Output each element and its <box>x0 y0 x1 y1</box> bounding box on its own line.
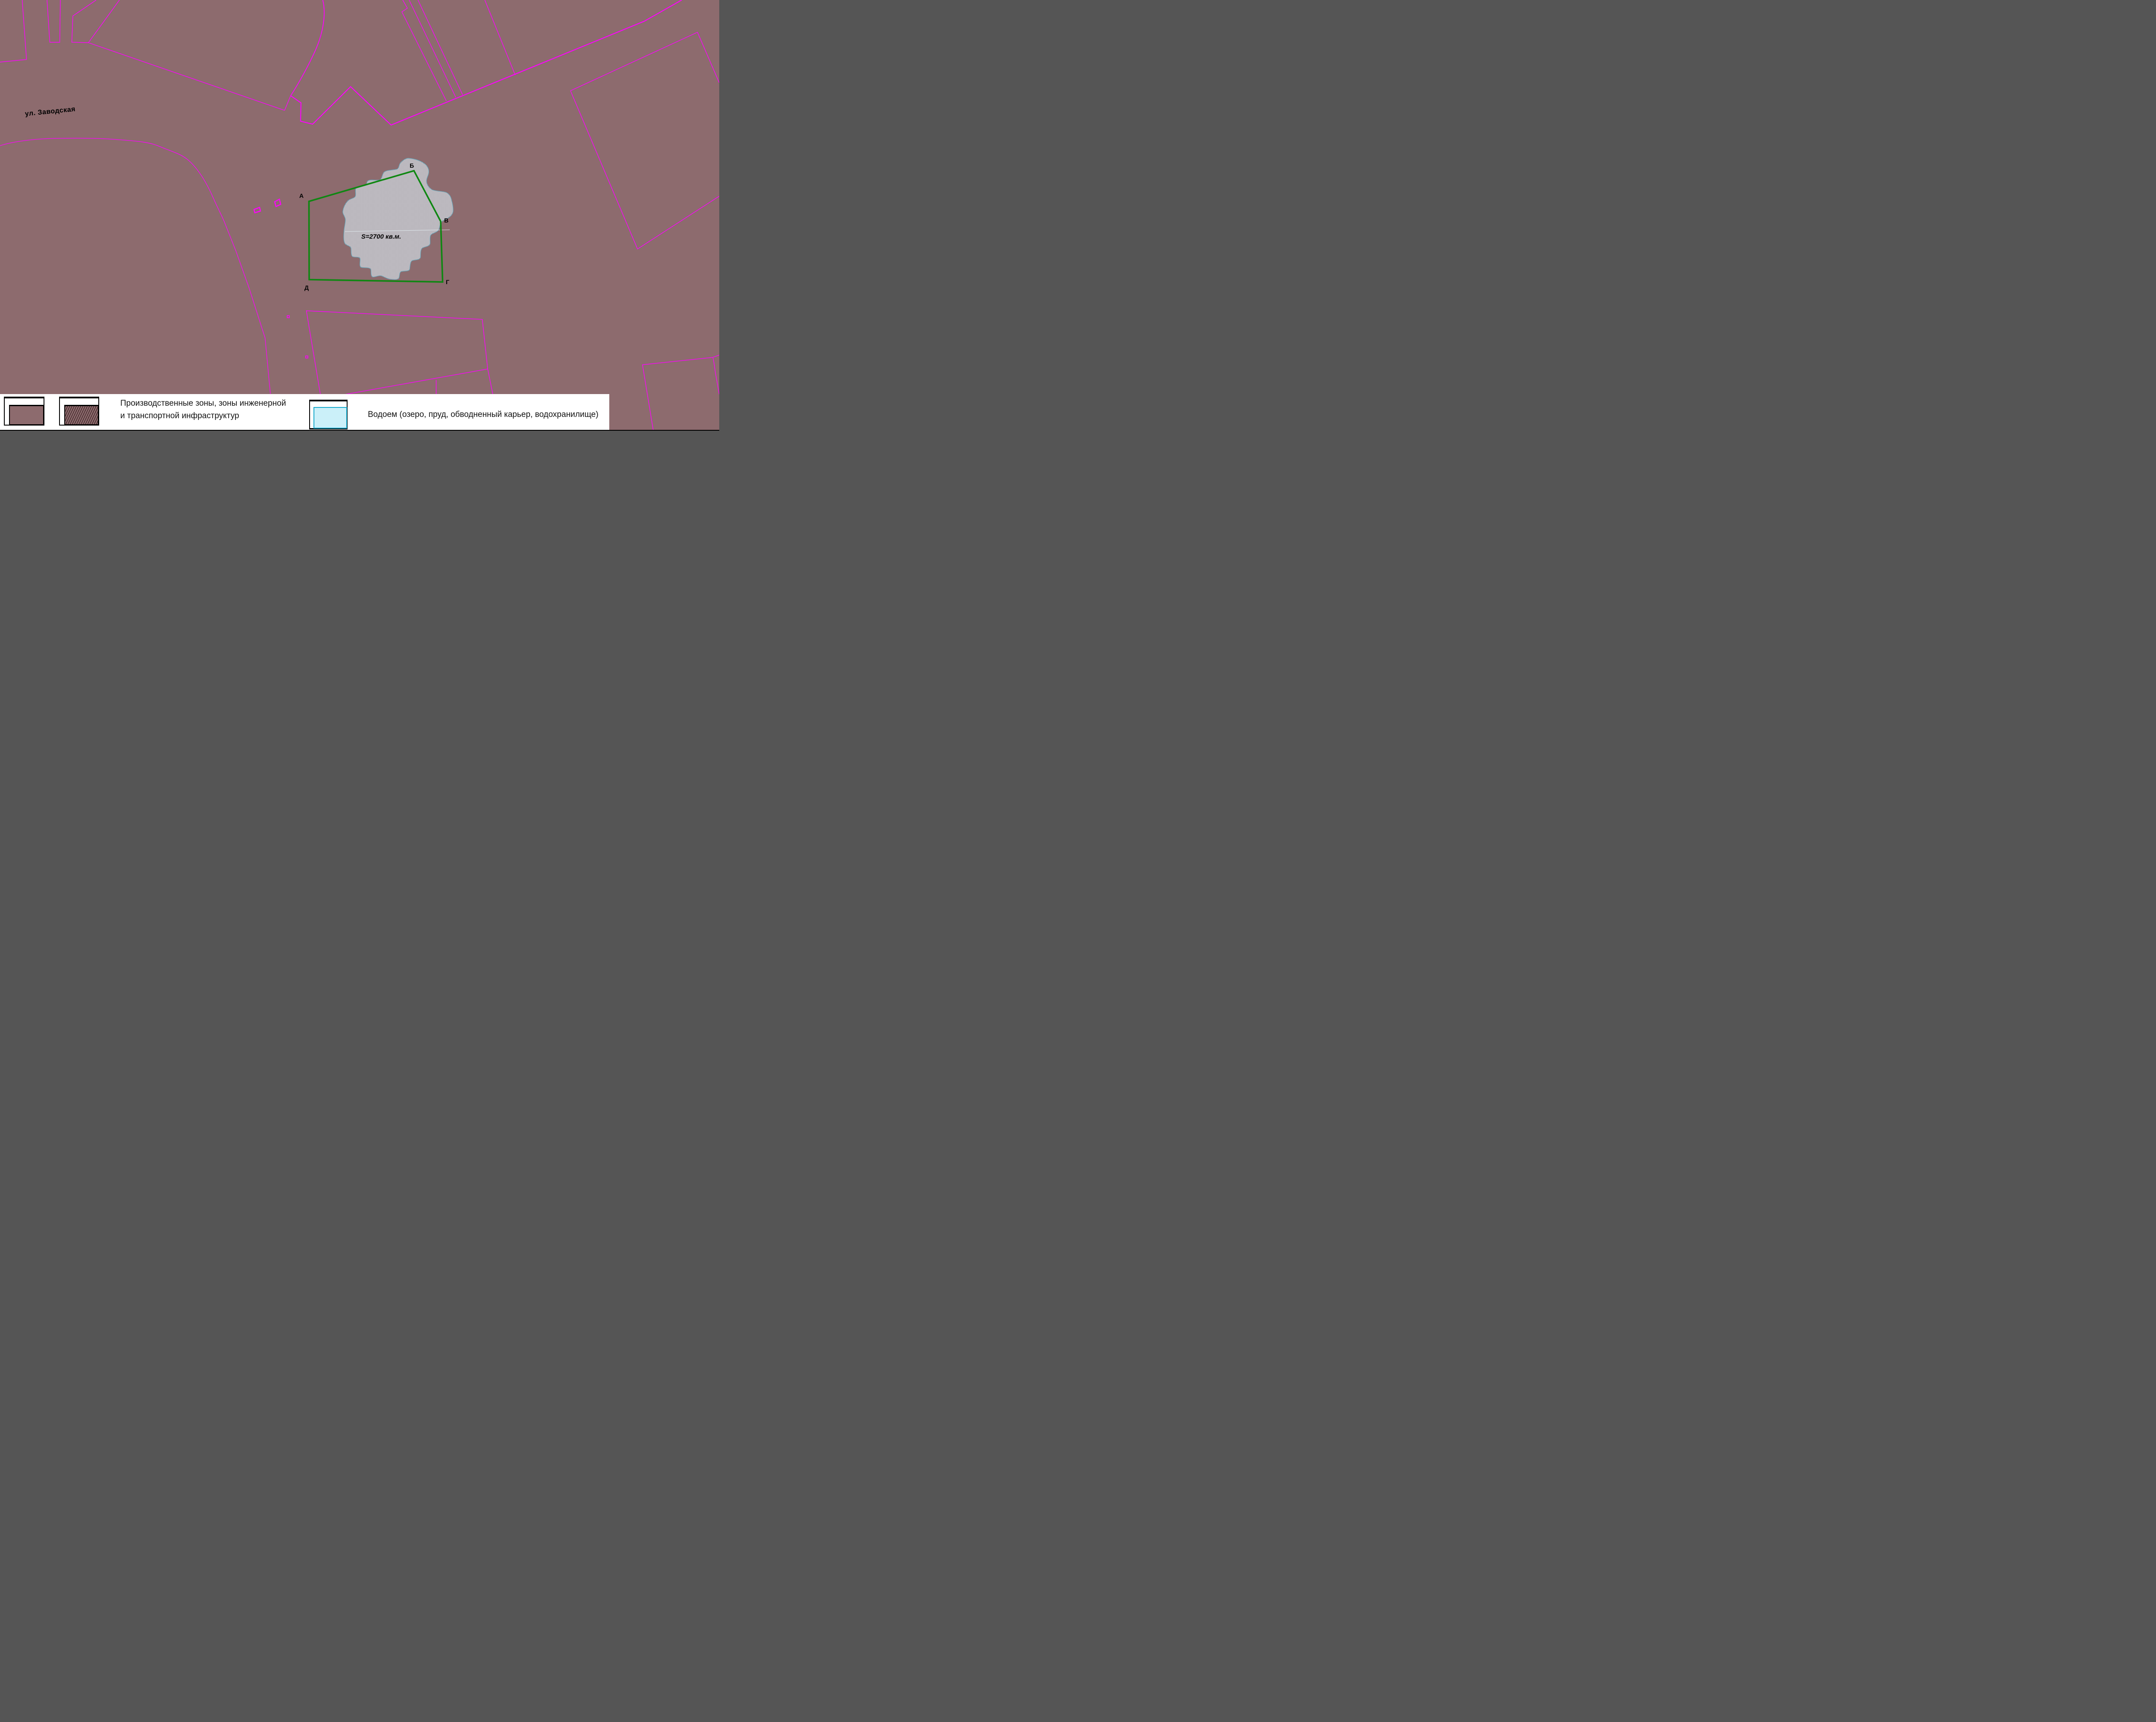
vertex-label-b: Б <box>410 162 414 169</box>
legend-swatch-water <box>313 407 347 429</box>
parcel-line <box>340 369 488 395</box>
zoning-map-graphics <box>0 0 719 431</box>
street-boundary <box>291 0 682 125</box>
building-outline <box>254 207 260 213</box>
point-marker <box>287 316 289 318</box>
vertex-label-v: В <box>444 217 448 224</box>
parcel-line <box>88 43 285 110</box>
parcel-line <box>402 0 446 101</box>
parcel-line <box>285 96 291 110</box>
legend-label-production: Производственные зоны, зоны инженерной и… <box>120 397 286 422</box>
legend-swatch-production-solid <box>9 405 44 425</box>
legend-label-production-line2: и транспортной инфраструктур <box>120 410 286 422</box>
parcel-line <box>418 0 463 95</box>
parcel-line <box>72 0 120 43</box>
road-edge <box>0 138 270 394</box>
parcel-line <box>485 0 515 75</box>
parcel-line <box>570 32 719 249</box>
parcel-line <box>307 311 493 394</box>
map-bottom-edge <box>0 430 719 431</box>
vertex-label-a: А <box>299 192 304 199</box>
parcel-line-curve <box>291 0 324 96</box>
building-outline <box>275 199 281 207</box>
legend-swatch-production-hatched <box>64 405 99 425</box>
water-body <box>343 158 453 279</box>
small-buildings <box>254 199 308 358</box>
legend-label-production-line1: Производственные зоны, зоны инженерной <box>120 397 286 410</box>
parcel-line <box>47 0 60 42</box>
parcel-line <box>409 0 456 97</box>
legend-label-water: Водоем (озеро, пруд, обводненный карьер,… <box>368 408 599 421</box>
vertex-label-d: Д <box>304 284 309 291</box>
parcel-line <box>713 358 720 394</box>
parcel-line <box>642 355 719 431</box>
legend: Производственные зоны, зоны инженерной и… <box>0 394 609 431</box>
map-canvas: ул. Заводская А Б В Г Д S=2700 кв.м. Про… <box>0 0 719 431</box>
vertex-label-g: Г <box>446 279 449 285</box>
area-label: S=2700 кв.м. <box>361 233 401 241</box>
parcel-line <box>0 0 27 62</box>
point-marker <box>306 356 308 358</box>
